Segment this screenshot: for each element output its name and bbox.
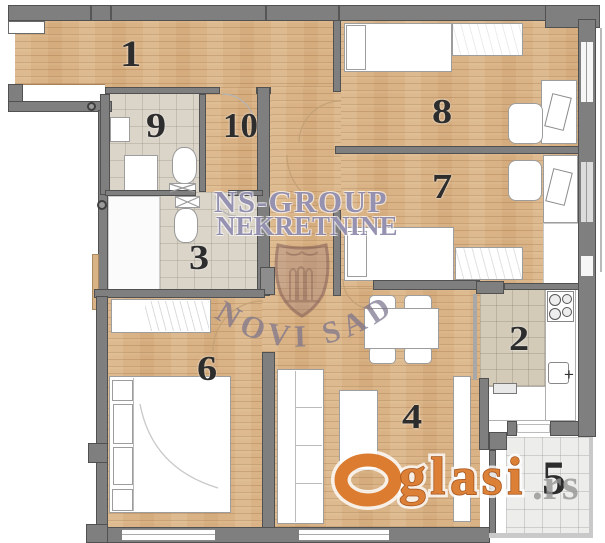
svg-text:glasi: glasi [399, 448, 527, 506]
svg-text:.rs: .rs [532, 462, 579, 509]
